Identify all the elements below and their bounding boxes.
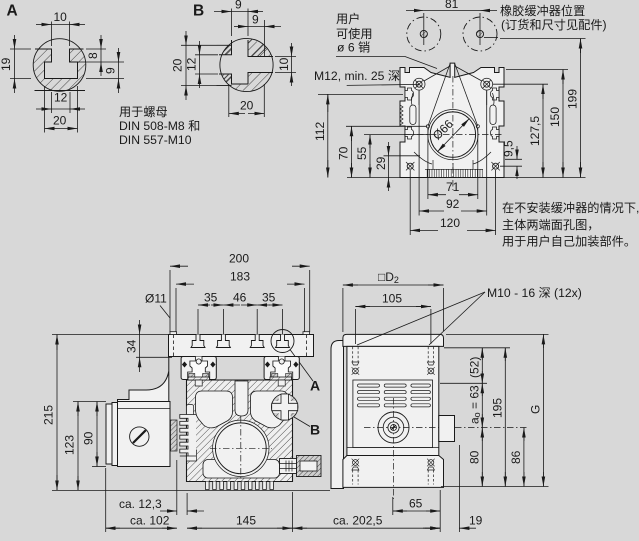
- svg-text:70: 70: [337, 146, 351, 160]
- svg-text:DIN 557-M10: DIN 557-M10: [119, 133, 192, 147]
- svg-text:ao = 63: ao = 63: [468, 385, 483, 424]
- svg-text:127,5: 127,5: [528, 116, 542, 146]
- svg-text:9: 9: [252, 13, 259, 27]
- svg-text:ø 6 销: ø 6 销: [337, 41, 370, 55]
- svg-text:10: 10: [54, 10, 68, 24]
- svg-text:(52): (52): [468, 357, 482, 378]
- svg-text:可使用: 可使用: [336, 26, 373, 41]
- svg-text:150: 150: [548, 107, 562, 127]
- svg-text:A: A: [7, 3, 18, 20]
- svg-text:Ø11: Ø11: [145, 292, 167, 306]
- svg-text:86: 86: [509, 450, 523, 464]
- svg-text:20: 20: [240, 99, 254, 113]
- svg-text:G: G: [529, 405, 543, 414]
- svg-text:DIN 508-M8 和: DIN 508-M8 和: [119, 119, 200, 133]
- svg-text:B: B: [193, 3, 204, 20]
- svg-text:183: 183: [230, 270, 250, 284]
- svg-text:ca. 12,3: ca. 12,3: [119, 497, 162, 511]
- svg-text:20: 20: [53, 114, 67, 128]
- svg-text:46: 46: [233, 291, 247, 305]
- svg-text:B: B: [310, 422, 320, 438]
- svg-text:71: 71: [446, 180, 460, 194]
- svg-text:90: 90: [82, 431, 96, 445]
- svg-text:65: 65: [409, 497, 423, 511]
- svg-text:35: 35: [262, 291, 276, 305]
- svg-text:M12, min. 25 深: M12, min. 25 深: [314, 69, 400, 83]
- svg-text:200: 200: [229, 252, 249, 266]
- svg-text:145: 145: [236, 514, 256, 528]
- svg-text:35: 35: [204, 291, 218, 305]
- svg-text:81: 81: [445, 0, 459, 11]
- svg-text:123: 123: [63, 435, 77, 455]
- svg-text:8: 8: [86, 52, 100, 59]
- svg-text:215: 215: [42, 405, 56, 425]
- svg-text:195: 195: [491, 398, 505, 418]
- svg-text:用于螺母: 用于螺母: [119, 105, 168, 119]
- svg-text:ca. 102: ca. 102: [130, 514, 170, 528]
- svg-text:ca. 202,5: ca. 202,5: [333, 514, 383, 528]
- svg-text:20: 20: [171, 58, 185, 72]
- svg-text:9: 9: [104, 67, 118, 74]
- svg-text:10: 10: [277, 57, 291, 71]
- svg-text:橡胶缓冲器位置: 橡胶缓冲器位置: [500, 3, 585, 18]
- svg-text:用于用户自己加装部件。: 用于用户自己加装部件。: [502, 234, 636, 249]
- svg-text:主体两端面孔图，: 主体两端面孔图，: [502, 218, 600, 232]
- svg-text:9: 9: [235, 0, 242, 12]
- svg-text:12: 12: [54, 91, 68, 105]
- svg-text:80: 80: [468, 450, 482, 464]
- svg-text:9,5: 9,5: [502, 140, 516, 157]
- svg-text:34: 34: [125, 339, 139, 353]
- svg-text:12: 12: [185, 57, 199, 71]
- svg-text:19: 19: [0, 57, 13, 71]
- svg-text:29: 29: [374, 156, 388, 170]
- svg-text:55: 55: [355, 146, 369, 160]
- svg-text:120: 120: [440, 216, 460, 230]
- svg-text:(订货和尺寸见配件): (订货和尺寸见配件): [501, 17, 607, 32]
- svg-text:92: 92: [446, 197, 460, 211]
- svg-text:在不安装缓冲器的情况下,: 在不安装缓冲器的情况下,: [502, 200, 639, 215]
- svg-text:105: 105: [382, 292, 402, 306]
- svg-text:A: A: [310, 378, 320, 394]
- svg-text:用户: 用户: [336, 11, 360, 26]
- svg-text:M10 - 16 深 (12x): M10 - 16 深 (12x): [487, 286, 582, 300]
- svg-text:199: 199: [566, 89, 580, 109]
- svg-text:112: 112: [313, 122, 327, 141]
- svg-text:19: 19: [469, 514, 483, 528]
